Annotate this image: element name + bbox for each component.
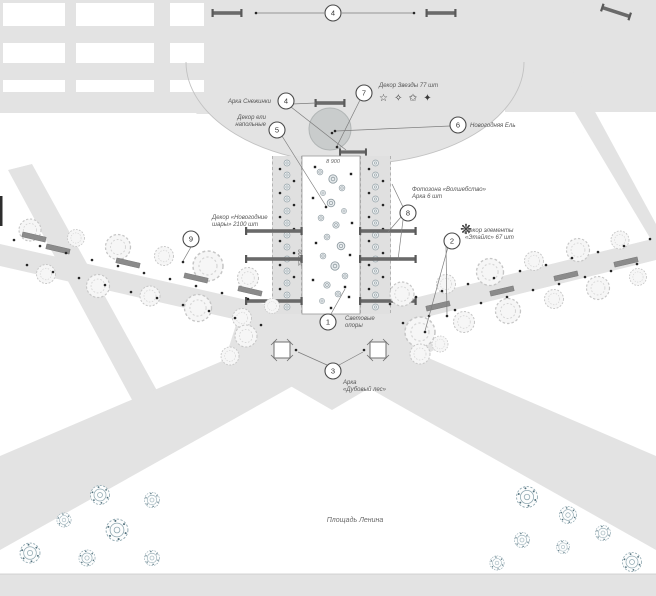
callout-7: 7 bbox=[356, 85, 372, 101]
callout-2: 2 bbox=[444, 233, 460, 249]
callout-1: 1 bbox=[320, 314, 336, 330]
label-fotozona-1: Фотозона «Волшебство» bbox=[412, 187, 487, 193]
callout-5: 5 bbox=[269, 122, 285, 138]
label-dekor-elementy-2: «Этайлс» 67 шт bbox=[465, 234, 514, 241]
svg-text:2: 2 bbox=[450, 237, 454, 246]
svg-text:4: 4 bbox=[331, 9, 335, 18]
svg-text:6: 6 bbox=[456, 121, 460, 130]
label-svetovye-opory-1: Световые bbox=[345, 316, 375, 322]
label-arka-dubovy-les-1: Арка bbox=[342, 380, 357, 386]
site-plan: ☆ ✧ ✩ ✦ ❋ 4 4 5 7 6 8 2 9 1 3 Арка Снежи… bbox=[0, 0, 656, 596]
edge-tick bbox=[0, 196, 3, 226]
svg-text:1: 1 bbox=[326, 318, 330, 327]
arch-base-right bbox=[367, 339, 389, 361]
label-dekor-eli-2: напольные bbox=[235, 122, 266, 128]
svg-text:4: 4 bbox=[284, 97, 288, 106]
label-dekor-zvezdy: Декор Звезды 77 шт bbox=[378, 83, 438, 89]
label-dekor-eli-1: Декор ели bbox=[236, 115, 266, 121]
label-novogodnie-shary-2: шары» 2100 шт bbox=[212, 222, 258, 228]
svg-text:3: 3 bbox=[331, 367, 335, 376]
label-fotozona-2: Арка 6 шт bbox=[411, 194, 442, 200]
callout-3: 3 bbox=[325, 363, 341, 379]
callout-4-top: 4 bbox=[325, 5, 341, 21]
label-novogodnie-shary-1: Декор «Новогодние bbox=[211, 215, 268, 221]
label-dekor-elementy-1: Декор элементы bbox=[464, 228, 514, 234]
label-arka-dubovy-les-2: «Дубовый лес» bbox=[343, 386, 387, 393]
svg-text:8: 8 bbox=[406, 209, 410, 218]
svg-text:9: 9 bbox=[189, 235, 193, 244]
dim-corridor-width: 8 900 bbox=[326, 159, 341, 165]
dim-corridor-length: 32 000 bbox=[298, 249, 304, 267]
callout-6: 6 bbox=[450, 117, 466, 133]
callout-9: 9 bbox=[183, 231, 199, 247]
svg-text:5: 5 bbox=[275, 126, 279, 135]
callout-4: 4 bbox=[278, 93, 294, 109]
callout-8: 8 bbox=[400, 205, 416, 221]
svg-text:7: 7 bbox=[362, 89, 366, 98]
new-year-tree bbox=[309, 108, 351, 150]
label-svetovye-opory-2: опоры bbox=[345, 323, 363, 329]
road-arrow-marking bbox=[0, 113, 218, 163]
label-novogodnyaya-el: Новогодняя Ель bbox=[470, 123, 515, 129]
label-plaza-name: Площадь Ленина bbox=[327, 516, 384, 524]
arch-base-left bbox=[271, 339, 293, 361]
stars-icon: ☆ ✧ ✩ ✦ bbox=[379, 93, 433, 104]
site-plan-canvas: ☆ ✧ ✩ ✦ ❋ 4 4 5 7 6 8 2 9 1 3 Арка Снежи… bbox=[0, 0, 656, 596]
label-arka-snezhinki: Арка Снежинки bbox=[227, 99, 272, 105]
bottom-road bbox=[0, 574, 656, 596]
